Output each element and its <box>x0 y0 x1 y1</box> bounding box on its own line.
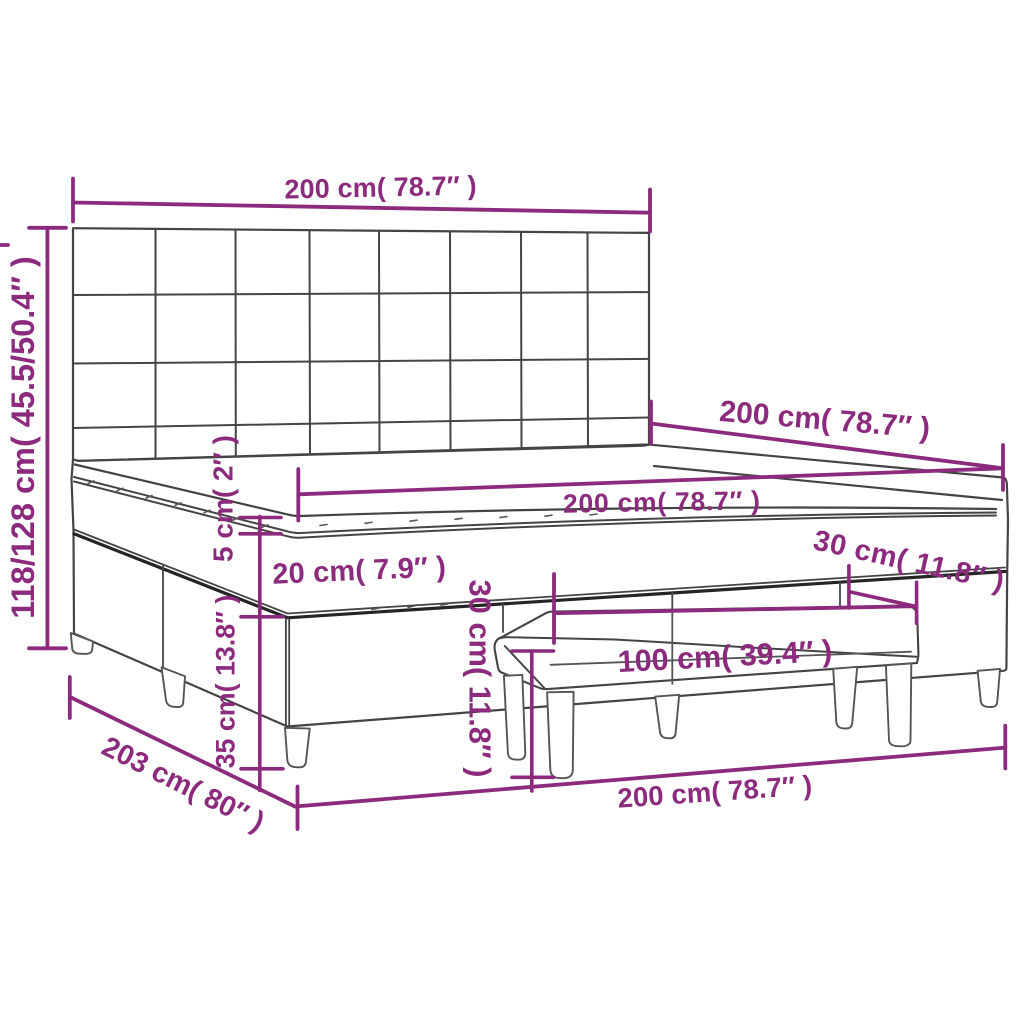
svg-text:118/128 cm( 45.5/50.4″ ): 118/128 cm( 45.5/50.4″ ) <box>5 256 41 619</box>
svg-text:203 cm( 80″ ): 203 cm( 80″ ) <box>97 731 269 839</box>
svg-text:35 cm( 13.8″ ): 35 cm( 13.8″ ) <box>211 595 241 769</box>
svg-text:5 cm( 2″ ): 5 cm( 2″ ) <box>208 435 239 562</box>
svg-text:30 cm( 11.8″ ): 30 cm( 11.8″ ) <box>462 580 497 778</box>
svg-text:200 cm( 78.7″ ): 200 cm( 78.7″ ) <box>284 170 477 204</box>
svg-text:200 cm( 78.7″ ): 200 cm( 78.7″ ) <box>563 485 761 518</box>
